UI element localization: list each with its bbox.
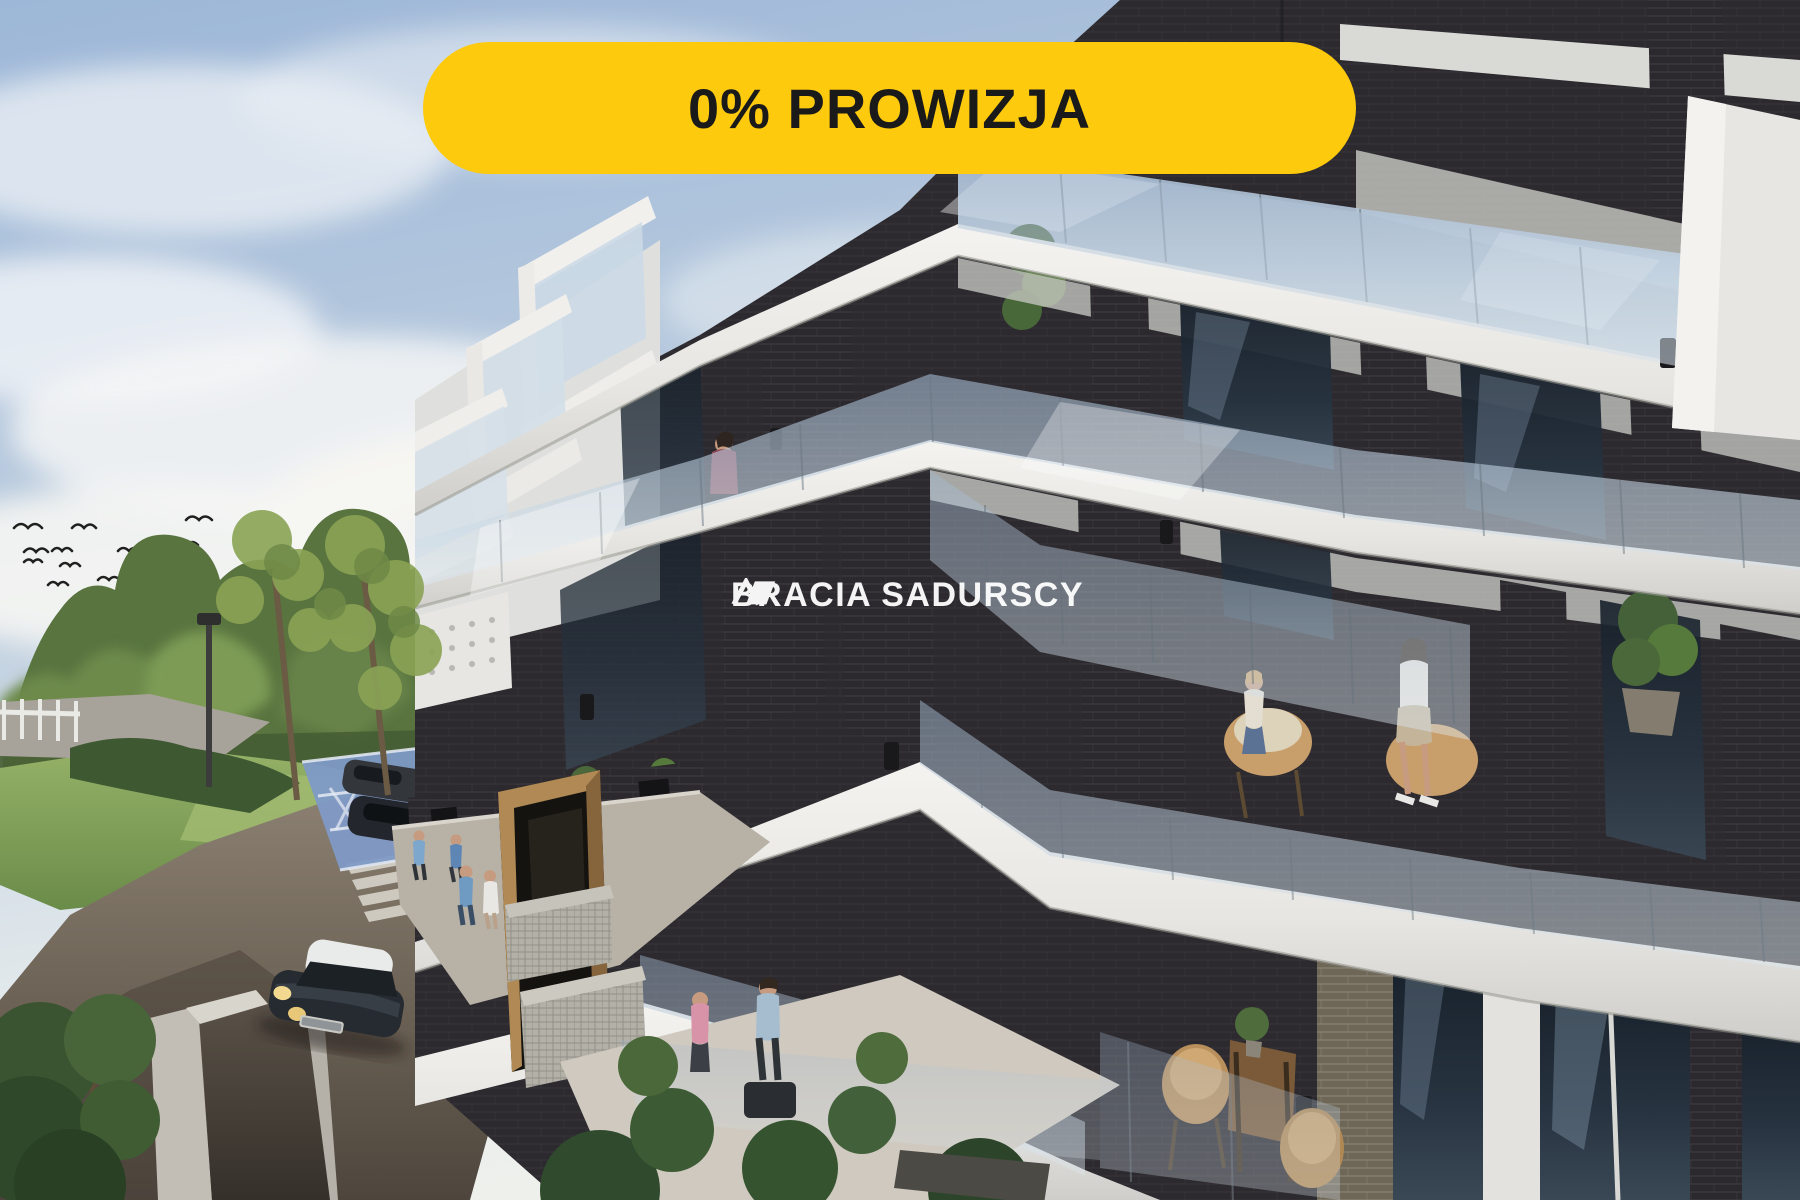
commission-badge: 0% PROWIZJA xyxy=(423,42,1356,174)
agency-roof-logo-icon xyxy=(731,578,777,606)
listing-photo: 0% PROWIZJA BRACIA SADURSCY xyxy=(0,0,1800,1200)
commission-badge-label: 0% PROWIZJA xyxy=(688,76,1091,141)
agency-watermark: BRACIA SADURSCY xyxy=(731,578,1084,612)
agency-watermark-second-word: SADURSCY xyxy=(881,578,1084,612)
